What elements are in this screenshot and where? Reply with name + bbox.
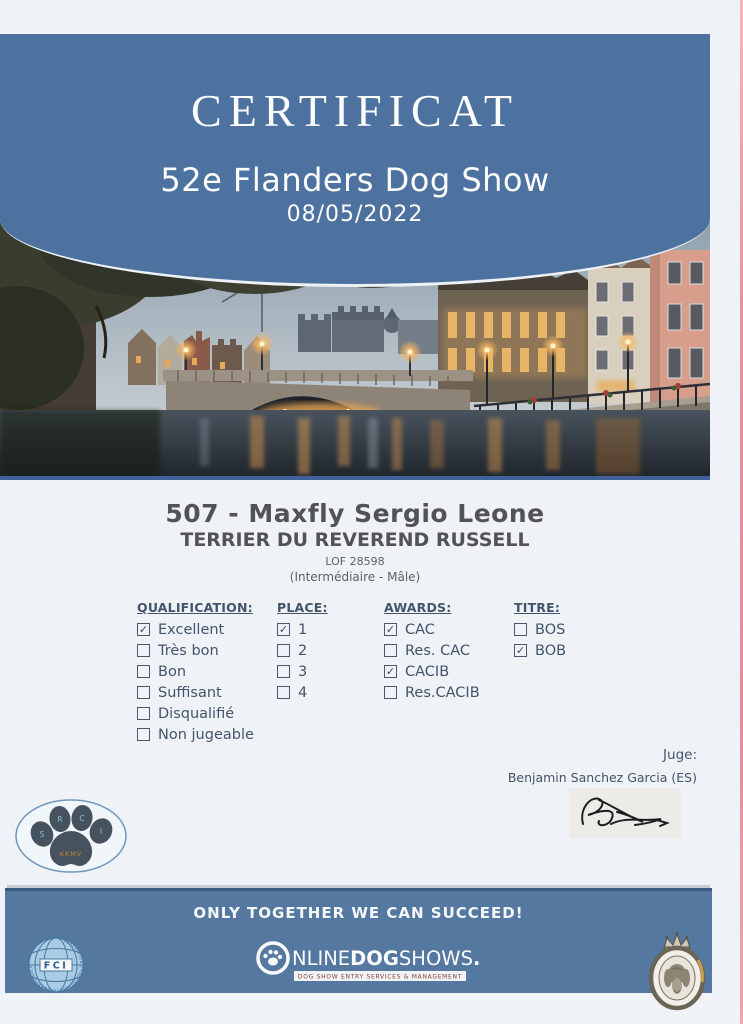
class-and-sex: (Intermédiaire - Mâle) bbox=[0, 570, 710, 584]
option-label: Res. CAC bbox=[405, 643, 470, 659]
checkbox-checked-icon: ✓ bbox=[384, 623, 397, 636]
certificate-header: CERTIFICAT 52e Flanders Dog Show 08/05/2… bbox=[0, 34, 710, 287]
checkbox-unchecked-icon bbox=[137, 728, 150, 741]
checkbox-unchecked-icon bbox=[137, 665, 150, 678]
catalog-number-and-name: 507 - Maxfly Sergio Leone bbox=[0, 499, 710, 528]
option-4: 4 bbox=[277, 682, 328, 703]
option-bon: Bon bbox=[137, 661, 254, 682]
option-bos: BOS bbox=[514, 619, 566, 640]
paw-toe-letter: S bbox=[40, 830, 45, 839]
option-label: CAC bbox=[405, 622, 435, 638]
option-2: 2 bbox=[277, 640, 328, 661]
option-label: Suffisant bbox=[158, 685, 222, 701]
option-disqualifi-: Disqualifié bbox=[137, 703, 254, 724]
checkbox-unchecked-icon bbox=[277, 686, 290, 699]
fci-text: FCI bbox=[44, 961, 69, 972]
motto-text: ONLY TOGETHER WE CAN SUCCEED! bbox=[5, 904, 712, 922]
certificate-page: CERTIFICAT 52e Flanders Dog Show 08/05/2… bbox=[0, 0, 743, 1024]
checkbox-checked-icon: ✓ bbox=[277, 623, 290, 636]
section-place: PLACE:✓1234 bbox=[277, 600, 328, 703]
checkbox-unchecked-icon bbox=[137, 686, 150, 699]
pedigree-number: LOF 28598 bbox=[0, 555, 710, 568]
option-cacib: ✓CACIB bbox=[384, 661, 480, 682]
fci-logo: FEDERATION CYNOLOGIQUE INTERNATIONALE FC… bbox=[26, 934, 86, 996]
section-title: PLACE: bbox=[277, 600, 328, 615]
option-1: ✓1 bbox=[277, 619, 328, 640]
option-tr-s-bon: Très bon bbox=[137, 640, 254, 661]
option-label: Bon bbox=[158, 664, 186, 680]
sections: QUALIFICATION:✓ExcellentTrès bonBonSuffi… bbox=[0, 600, 710, 750]
checkbox-checked-icon: ✓ bbox=[384, 665, 397, 678]
checkbox-unchecked-icon bbox=[384, 686, 397, 699]
ods-tagline: DOG SHOW ENTRY SERVICES & MANAGEMENT bbox=[298, 974, 462, 981]
dog-entry: 507 - Maxfly Sergio Leone TERRIER DU REV… bbox=[0, 499, 710, 584]
option-excellent: ✓Excellent bbox=[137, 619, 254, 640]
checkbox-checked-icon: ✓ bbox=[514, 644, 527, 657]
option-non-jugeable: Non jugeable bbox=[137, 724, 254, 745]
option-label: Non jugeable bbox=[158, 727, 254, 743]
show-name: 52e Flanders Dog Show bbox=[0, 161, 710, 199]
checkbox-checked-icon: ✓ bbox=[137, 623, 150, 636]
section-qualification: QUALIFICATION:✓ExcellentTrès bonBonSuffi… bbox=[137, 600, 254, 745]
checkbox-unchecked-icon bbox=[514, 623, 527, 636]
option-label: 4 bbox=[298, 685, 307, 701]
ods-dog: DOG bbox=[350, 947, 399, 970]
ods-online: NLINE bbox=[292, 947, 350, 970]
paw-logo: S R C I KKMV bbox=[12, 798, 130, 876]
onlinedogshows-logo: NLINEDOGSHOWS.eu DOG SHOW ENTRY SERVICES… bbox=[252, 938, 480, 988]
paw-toe-letter: C bbox=[79, 814, 84, 823]
show-date: 08/05/2022 bbox=[0, 202, 710, 227]
photo-underline bbox=[0, 476, 710, 480]
section-title: TITRE: bbox=[514, 600, 566, 615]
royal-crest-logo bbox=[636, 928, 716, 1012]
section-titre: TITRE:BOS✓BOB bbox=[514, 600, 566, 661]
option-label: Excellent bbox=[158, 622, 224, 638]
checkbox-unchecked-icon bbox=[277, 665, 290, 678]
option-label: 2 bbox=[298, 643, 307, 659]
option-res-cac: Res. CAC bbox=[384, 640, 480, 661]
option-cac: ✓CAC bbox=[384, 619, 480, 640]
section-title: QUALIFICATION: bbox=[137, 600, 254, 615]
option-label: Très bon bbox=[158, 643, 219, 659]
breed-name: TERRIER DU REVEREND RUSSELL bbox=[0, 529, 710, 551]
option-label: BOB bbox=[535, 643, 566, 659]
judge-block: Juge: Benjamin Sanchez Garcia (ES) bbox=[508, 747, 697, 842]
svg-text:NLINEDOGSHOWS.eu: NLINEDOGSHOWS.eu bbox=[292, 947, 480, 970]
ods-paw-icon bbox=[263, 950, 282, 966]
option-label: Disqualifié bbox=[158, 706, 234, 722]
option-3: 3 bbox=[277, 661, 328, 682]
judge-label: Juge: bbox=[508, 747, 697, 763]
option-label: CACIB bbox=[405, 664, 449, 680]
checkbox-unchecked-icon bbox=[277, 644, 290, 657]
ods-shows: SHOWS bbox=[399, 947, 473, 970]
paw-toe-letter: R bbox=[57, 815, 62, 824]
ods-eu: .eu bbox=[473, 947, 480, 970]
option-suffisant: Suffisant bbox=[137, 682, 254, 703]
option-label: 3 bbox=[298, 664, 307, 680]
paw-toe-letter: I bbox=[100, 827, 102, 836]
checkbox-unchecked-icon bbox=[384, 644, 397, 657]
checkbox-unchecked-icon bbox=[137, 707, 150, 720]
judge-signature bbox=[569, 788, 681, 838]
section-awards: AWARDS:✓CACRes. CAC✓CACIBRes.CACIB bbox=[384, 600, 480, 703]
option-res-cacib: Res.CACIB bbox=[384, 682, 480, 703]
certificate-title: CERTIFICAT bbox=[0, 84, 710, 137]
option-label: 1 bbox=[298, 622, 307, 638]
option-label: BOS bbox=[535, 622, 565, 638]
option-label: Res.CACIB bbox=[405, 685, 480, 701]
paw-pad-text: KKMV bbox=[60, 850, 83, 858]
checkbox-unchecked-icon bbox=[137, 644, 150, 657]
option-bob: ✓BOB bbox=[514, 640, 566, 661]
section-title: AWARDS: bbox=[384, 600, 480, 615]
judge-name: Benjamin Sanchez Garcia (ES) bbox=[508, 770, 697, 785]
